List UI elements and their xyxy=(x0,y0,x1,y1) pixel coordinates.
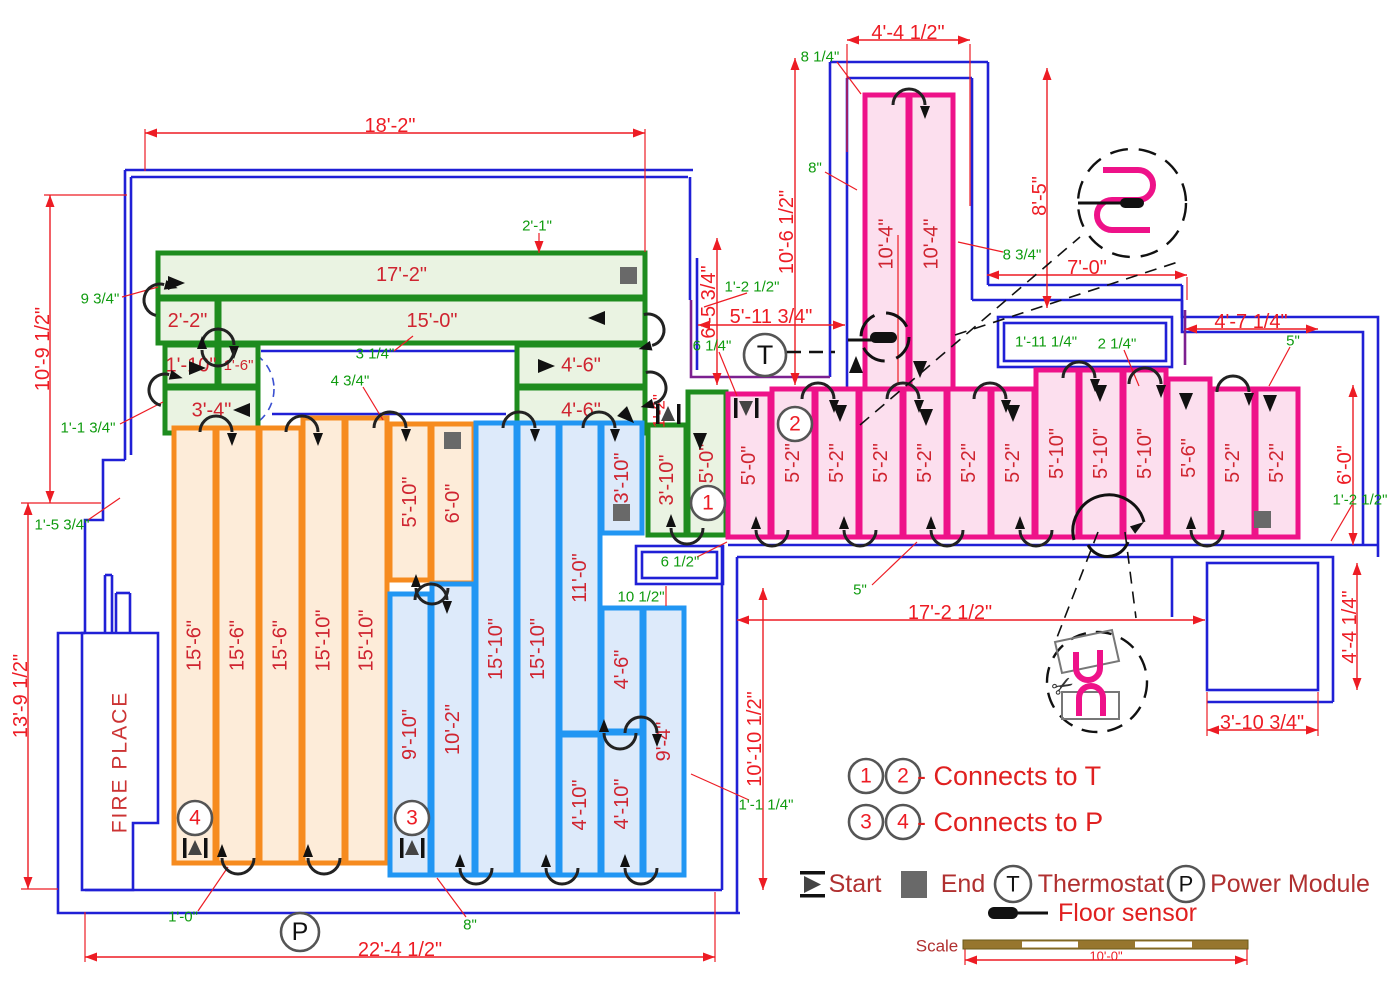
dim-arrow xyxy=(1175,271,1187,280)
dimension-17-2-1-2: 17'-2 1/2" xyxy=(908,602,992,624)
dim-arrow xyxy=(1349,385,1358,397)
dimension-6-0: 6'-0" xyxy=(1334,445,1356,485)
dimension-10-9-1-2: 10'-9 1/2" xyxy=(32,307,54,391)
detail-sensor-tip xyxy=(1120,198,1144,208)
pink-run-label: 5'-2" xyxy=(1222,443,1244,483)
legend-end-label: End xyxy=(941,870,985,898)
dim-arrow xyxy=(1043,68,1052,80)
leader-8 xyxy=(437,878,466,917)
leader-6-1-4 xyxy=(719,352,737,396)
note-1-5-3-4-3: 1'-5 3/4" xyxy=(35,517,90,534)
dim-arrow xyxy=(46,491,55,503)
dim-arrow xyxy=(1207,726,1219,735)
note-9-3-4-1: 9 3/4" xyxy=(81,291,120,308)
blue-run-label: 15'-10" xyxy=(485,618,507,680)
green-run-label: 4'-6" xyxy=(561,355,601,377)
dimension-13-9-1-2: 13'-9 1/2" xyxy=(10,654,32,738)
note-1-1-3-4-2: 1'-1 3/4" xyxy=(61,420,116,437)
pink-run-label: 5'-10" xyxy=(1046,428,1068,479)
dimension-10-0: 10'-0" xyxy=(1089,949,1123,964)
legend-sensor-icon xyxy=(988,907,1018,919)
pink-run-label: 5'-2" xyxy=(782,443,804,483)
note-3-1-4-9: 3 1/4" xyxy=(356,346,395,363)
dim-arrow xyxy=(833,321,845,330)
legend-connects-p: - Connects to P xyxy=(917,807,1103,837)
dim-arrow xyxy=(703,953,715,962)
dim-arrow xyxy=(1043,296,1052,308)
legend-power-label: Power Module xyxy=(1210,870,1370,898)
pink-run-label: 5'-2" xyxy=(826,443,848,483)
leader-8-3-4 xyxy=(958,242,1003,252)
dim-arrow xyxy=(1349,533,1358,545)
pink-run-label: 5'-0" xyxy=(738,446,760,486)
note-8-1-4-13: 8 1/4" xyxy=(801,49,840,66)
note-5-8: 5" xyxy=(853,582,867,599)
thermostat-symbol: T xyxy=(757,340,774,370)
dimension-4-4-1-4: 4'-4 1/4" xyxy=(1339,590,1361,663)
dim-arrow xyxy=(85,953,97,962)
pink-run-label: 10'-4" xyxy=(921,219,943,270)
end-marker-1 xyxy=(444,432,461,449)
scale-bar xyxy=(963,940,1248,949)
dim-arrow xyxy=(1353,563,1362,575)
orange-run-label: 15'-10" xyxy=(356,609,378,671)
legend-start-label: Start xyxy=(829,870,882,898)
circuit-number-4: 4 xyxy=(189,807,201,830)
note-2-1-4-17: 2 1/4" xyxy=(1098,336,1137,353)
legend-power: P xyxy=(1179,872,1194,897)
circuit-number-1: 1 xyxy=(702,492,714,515)
legend-connects-t: - Connects to T xyxy=(917,761,1101,791)
dimension-4-4-1-2: 4'-4 1/2" xyxy=(871,22,944,44)
legend-circuit-3: 3 xyxy=(860,811,872,834)
note-1-11-1-4-16: 1'-11 1/4" xyxy=(1015,334,1077,351)
dim-arrow xyxy=(713,238,722,250)
dimension-5-11-3-4: 5'-11 3/4" xyxy=(730,306,813,328)
end-marker-2 xyxy=(613,504,630,521)
note-8-5: 8" xyxy=(463,917,477,934)
dim-arrow xyxy=(1306,726,1318,735)
circuit-number-2: 2 xyxy=(789,413,801,436)
blue-run-label: 10'-2" xyxy=(442,704,464,755)
dim-arrow xyxy=(958,36,970,45)
blue-run-label: 15'-10" xyxy=(527,618,549,680)
blue-run-label: 4'-6" xyxy=(611,650,633,690)
legend-start-icon xyxy=(800,871,825,898)
plan-svg: 17'-2"15'-0"2'-2"1'-10"1'-6"3'-4"4'-6"4'… xyxy=(0,0,1400,1000)
legend-circuit-4: 4 xyxy=(897,811,909,834)
orange-run-label: 15'-6" xyxy=(270,620,292,671)
dim-arrow xyxy=(24,877,33,889)
note-1-2-1-2-19: 1'-2 1/2" xyxy=(1333,492,1388,509)
note-1-0-4: 1'-0" xyxy=(168,909,198,926)
dim-arrow xyxy=(1235,956,1247,965)
legend-end-icon xyxy=(901,871,927,898)
pink-run-label: 10'-4" xyxy=(876,219,898,270)
legend-circuit-2: 2 xyxy=(897,765,909,788)
leader-1-2-1-2 xyxy=(1331,505,1352,541)
blue-run-label: 11'-0" xyxy=(569,553,591,602)
note-1-1-1-4-20: 1'-1 1/4" xyxy=(739,797,794,814)
leader-5 xyxy=(872,542,917,585)
fireplace-label: FIRE PLACE xyxy=(109,691,132,834)
dimension-8-5: 8'-5" xyxy=(1029,176,1051,216)
pink-run-label: 5'-2" xyxy=(914,443,936,483)
dim-arrow xyxy=(1353,678,1362,690)
pink-run-label: 5'-2" xyxy=(958,443,980,483)
legend-thermostat: T xyxy=(1006,872,1019,897)
end-marker-3 xyxy=(1254,511,1271,528)
scale-label: Scale xyxy=(916,937,959,956)
pink-run-label: 5'-2" xyxy=(1266,443,1288,483)
scale-bar-segment xyxy=(1022,942,1078,948)
orange-run-label: 6'-0" xyxy=(442,484,464,524)
orange-run-label: 5'-10" xyxy=(399,477,421,528)
dimension-18-2: 18'-2" xyxy=(365,115,416,137)
pink-run-label: 5'-2" xyxy=(1002,443,1024,483)
dim-arrow xyxy=(24,503,33,515)
note-6-1-4-12: 6 1/4" xyxy=(693,338,732,355)
dim-arrow xyxy=(737,616,749,625)
dim-arrow xyxy=(633,129,645,138)
orange-run-label: 15'-6" xyxy=(184,620,206,671)
legend-circuit-1: 1 xyxy=(860,765,872,788)
scale-bar-segment xyxy=(1135,942,1192,948)
floor-heating-plan: 17'-2"15'-0"2'-2"1'-10"1'-6"3'-4"4'-6"4'… xyxy=(0,0,1400,1000)
blue-run-label: 4'-10" xyxy=(569,780,591,831)
dim-arrow xyxy=(759,878,768,890)
dim-arrow xyxy=(1193,616,1205,625)
dim-arrow xyxy=(145,129,157,138)
pink-run-label: 5'-10" xyxy=(1134,428,1156,479)
note-6-1-2-6: 6 1/2" xyxy=(661,554,700,571)
pink-run-label: 5'-6" xyxy=(1178,438,1200,478)
leader-9-3-4 xyxy=(122,287,158,297)
circuit-number-3: 3 xyxy=(406,807,418,830)
note-4-3-4-10: 4 3/4" xyxy=(331,373,370,390)
dim-arrow xyxy=(791,373,800,385)
legend-sensor-label: Floor sensor xyxy=(1058,899,1197,927)
green-run-label: 4'-6" xyxy=(561,400,601,422)
dim-arrow xyxy=(965,956,977,965)
green-run-label: 2'-2" xyxy=(168,310,208,332)
dimension-10-10-1-2: 10'-10 1/2" xyxy=(744,691,766,786)
note-8-3-4-15: 8 3/4" xyxy=(1003,247,1042,264)
green-run-label: 5'-0" xyxy=(696,444,718,484)
leader-5 xyxy=(1269,347,1290,386)
orange-run-label: 15'-6" xyxy=(227,620,249,671)
green-run-label: 17'-2" xyxy=(376,264,427,286)
blue-run-label: 3'-10" xyxy=(611,453,633,504)
orange-run-label: 15'-10" xyxy=(313,609,335,671)
pink-run-label: 5'-10" xyxy=(1090,428,1112,479)
legend-thermostat-label: Thermostat xyxy=(1038,870,1164,898)
wall xyxy=(737,557,1333,702)
dimension-4-7-1-4: 4'-7 1/4" xyxy=(1214,311,1287,333)
dim-arrow xyxy=(847,36,859,45)
end-marker-0 xyxy=(620,267,637,284)
dimension-10-6-1-2: 10'-6 1/2" xyxy=(776,190,798,274)
dimension-3-10-3-4: 3'-10 3/4" xyxy=(1220,712,1304,734)
note-10-1-2-7: 10 1/2" xyxy=(617,589,664,606)
flow-arrow xyxy=(849,356,863,373)
dim-arrow xyxy=(759,588,768,600)
green-run-label: 1'-6" xyxy=(224,357,254,374)
blue-run-label: 9'-10" xyxy=(399,709,421,760)
dim-arrow xyxy=(713,373,722,385)
note-5-18: 5" xyxy=(1286,333,1300,350)
island-wall xyxy=(1207,563,1318,690)
dim-arrow xyxy=(46,195,55,207)
dim-arrow xyxy=(791,58,800,70)
floor-sensor-tip xyxy=(870,332,897,343)
dimension-22-4-1-2: 22'-4 1/2" xyxy=(358,939,442,961)
green-run-label: 15'-0" xyxy=(407,310,458,332)
green-run-label: 3'-10" xyxy=(656,455,678,506)
note-1-2-1-2-11: 1'-2 1/2" xyxy=(725,279,780,296)
note-2-1-0: 2'-1" xyxy=(522,218,552,235)
dimension-7-0: 7'-0" xyxy=(1067,257,1107,279)
pink-run-label: 5'-2" xyxy=(870,443,892,483)
blue-run-label: 4'-10" xyxy=(611,779,633,830)
note-8-14: 8" xyxy=(808,160,822,177)
power-symbol: P xyxy=(292,918,309,946)
